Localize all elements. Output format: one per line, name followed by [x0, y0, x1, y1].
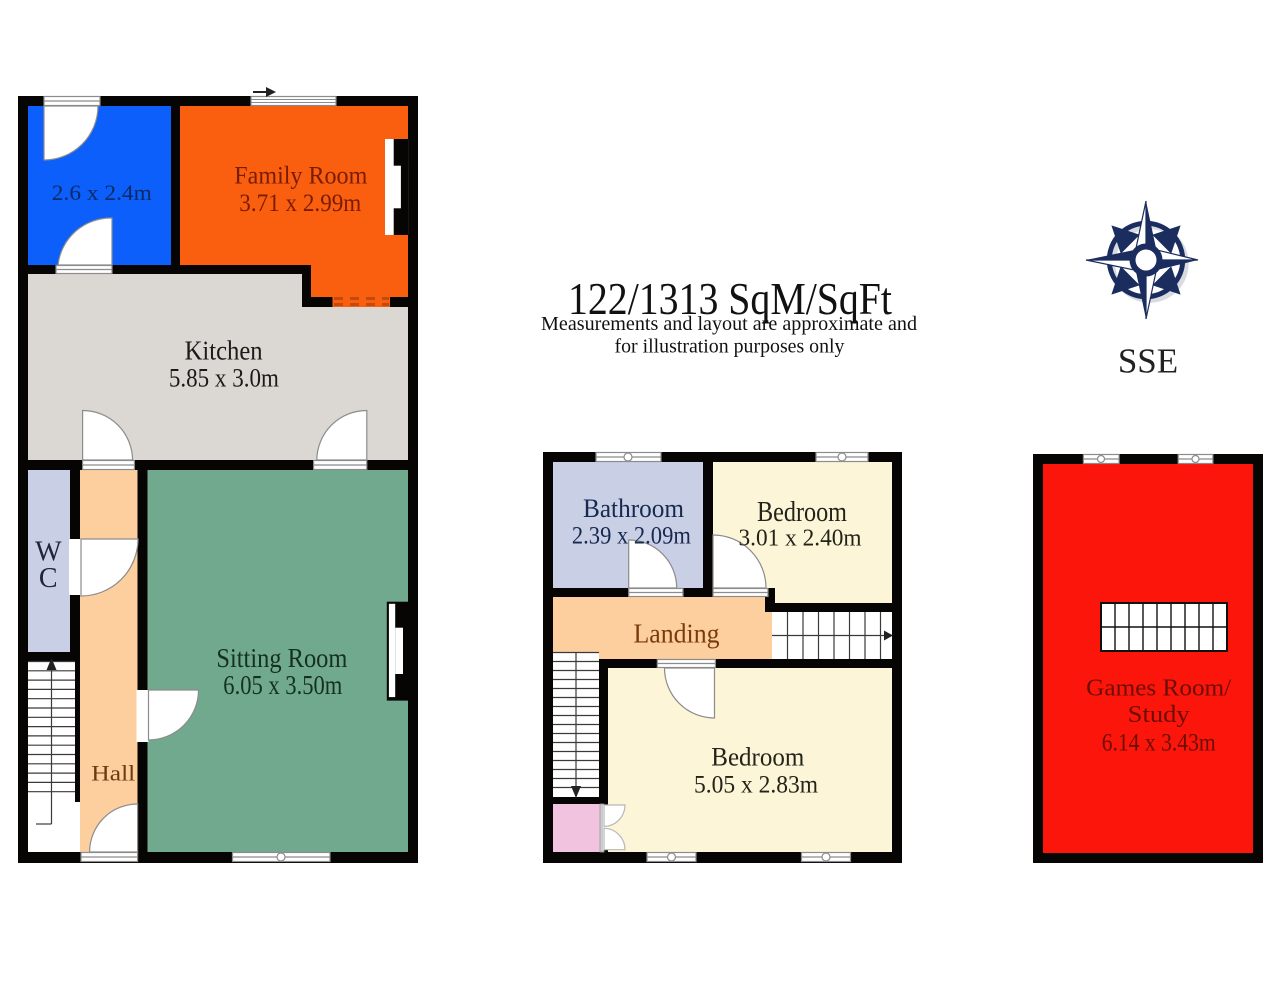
svg-text:2.39 x 2.09m: 2.39 x 2.09m: [572, 523, 691, 550]
svg-text:Bedroom: Bedroom: [757, 497, 847, 528]
svg-text:Bedroom: Bedroom: [711, 743, 804, 772]
svg-text:C: C: [39, 563, 58, 594]
svg-text:5.85 x 3.0m: 5.85 x 3.0m: [169, 363, 279, 392]
svg-text:Bathroom: Bathroom: [583, 494, 684, 523]
svg-text:for illustration purposes only: for illustration purposes only: [615, 337, 845, 358]
svg-text:Family Room: Family Room: [234, 163, 368, 190]
svg-text:Hall: Hall: [91, 760, 135, 785]
svg-text:6.05 x 3.50m: 6.05 x 3.50m: [223, 669, 342, 700]
svg-text:3.01 x 2.40m: 3.01 x 2.40m: [739, 526, 862, 552]
svg-text:Landing: Landing: [634, 619, 720, 649]
svg-text:2.6 x 2.4m: 2.6 x 2.4m: [52, 180, 152, 205]
svg-text:Kitchen: Kitchen: [185, 334, 263, 365]
svg-text:3.71 x 2.99m: 3.71 x 2.99m: [239, 190, 362, 217]
svg-text:5.05 x 2.83m: 5.05 x 2.83m: [694, 772, 819, 799]
svg-text:Measurements and layout are ap: Measurements and layout are approximate …: [541, 314, 917, 335]
svg-text:Study: Study: [1128, 701, 1191, 728]
svg-text:6.14 x 3.43m: 6.14 x 3.43m: [1102, 730, 1216, 757]
svg-text:SSE: SSE: [1118, 342, 1178, 381]
svg-text:Games Room/: Games Room/: [1086, 675, 1231, 702]
